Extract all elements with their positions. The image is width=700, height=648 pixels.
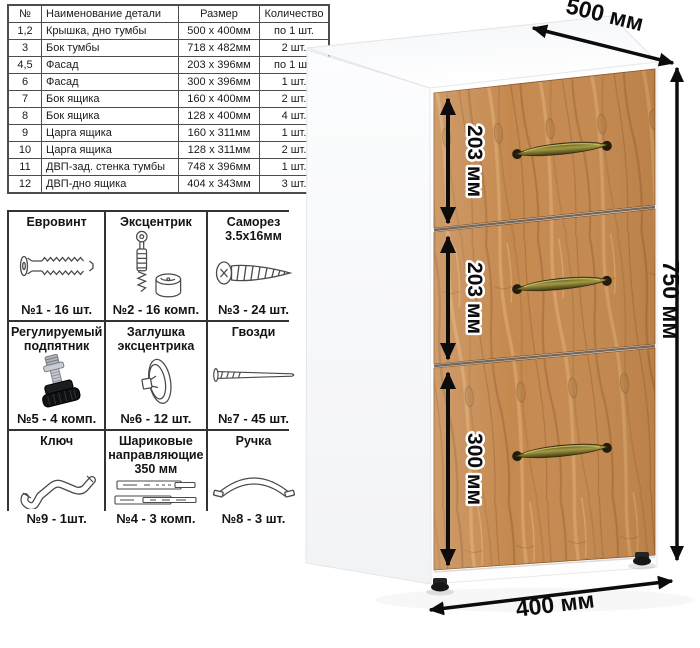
part-size: 128 х 311мм: [179, 142, 260, 159]
part-size: 500 х 400мм: [179, 23, 260, 40]
table-row: 7Бок ящика160 х 400мм2 шт.: [8, 91, 329, 108]
part-name: Царга ящика: [42, 125, 179, 142]
hw-qty: №5 - 4 комп.: [17, 411, 96, 426]
col-header-num: №: [8, 5, 42, 23]
adjustable-foot-icon: [21, 353, 93, 411]
hardware-grid: Евровинт №1 - 16 шт. Эксцентрик: [7, 210, 289, 511]
table-row: 8Бок ящика128 х 400мм4 шт.: [8, 108, 329, 125]
part-name: Царга ящика: [42, 142, 179, 159]
hw-title: Шариковые направляющие 350 мм: [108, 435, 203, 476]
hw-cell-excentric: Эксцентрик: [106, 212, 205, 320]
assembly-sheet: № Наименование детали Размер Количество …: [0, 0, 700, 648]
hw-title: Заглушка эксцентрика: [108, 326, 203, 354]
part-name: ДВП-зад. стенка тумбы: [42, 159, 179, 176]
hw-qty: №7 - 45 шт.: [218, 411, 289, 426]
part-num: 6: [8, 74, 42, 91]
part-size: 300 х 396мм: [179, 74, 260, 91]
hw-cell-gvozdi: Гвозди №7 - 45 шт.: [208, 322, 300, 430]
cam-lock-icon: [124, 230, 188, 302]
hw-cell-eurovint: Евровинт №1 - 16 шт.: [9, 212, 104, 320]
hw-title: Регулируемый подпятник: [11, 326, 102, 354]
hw-title: Эксцентрик: [120, 216, 192, 230]
table-row: 9Царга ящика160 х 311мм1 шт.: [8, 125, 329, 142]
hw-qty: №8 - 3 шт.: [222, 511, 286, 526]
hw-qty: №4 - 3 комп.: [116, 511, 195, 526]
part-num: 8: [8, 108, 42, 125]
table-row: 1,2Крышка, дно тумбы500 х 400ммпо 1 шт.: [8, 23, 329, 40]
part-name: Бок тумбы: [42, 40, 179, 57]
table-row: 4,5Фасад203 х 396ммпо 1 шт.: [8, 57, 329, 74]
hw-title: Ключ: [40, 435, 73, 449]
part-num: 9: [8, 125, 42, 142]
cabinet-left-side: [306, 50, 431, 584]
part-size: 404 х 343мм: [179, 176, 260, 194]
hex-key-icon: [17, 449, 97, 511]
table-row: 6Фасад300 х 396мм1 шт.: [8, 74, 329, 91]
hw-cell-podpyatnik: Регулируемый подпятник №5 - 4 комп.: [9, 322, 104, 430]
hw-qty: №1 - 16 шт.: [21, 302, 92, 317]
part-num: 1,2: [8, 23, 42, 40]
table-row: 12ДВП-дно ящика404 х 343мм3 шт.: [8, 176, 329, 194]
parts-table: № Наименование детали Размер Количество …: [7, 4, 330, 194]
part-name: Бок ящика: [42, 108, 179, 125]
part-size: 748 х 396мм: [179, 159, 260, 176]
drawer3-height-label: 300 мм: [463, 433, 486, 505]
ball-slides-icon: [114, 477, 198, 511]
hw-cell-ruchka: Ручка №8 - 3 шт.: [208, 431, 300, 528]
bow-handle-icon: [212, 449, 296, 511]
part-name: Бок ящика: [42, 91, 179, 108]
euro-screw-icon: [17, 230, 97, 302]
drawer2-height-label: 203 мм: [463, 262, 486, 334]
part-name: ДВП-дно ящика: [42, 176, 179, 194]
drawer1-height-label: 203 мм: [463, 125, 486, 197]
table-row: 10Царга ящика128 х 311мм2 шт.: [8, 142, 329, 159]
table-row: 11ДВП-зад. стенка тумбы748 х 396мм1 шт.: [8, 159, 329, 176]
hw-title: Ручка: [236, 435, 272, 449]
part-num: 11: [8, 159, 42, 176]
part-size: 203 х 396мм: [179, 57, 260, 74]
part-num: 10: [8, 142, 42, 159]
part-size: 160 х 311мм: [179, 125, 260, 142]
part-size: 128 х 400мм: [179, 108, 260, 125]
table-row: 3Бок тумбы718 х 482мм2 шт.: [8, 40, 329, 57]
col-header-name: Наименование детали: [42, 5, 179, 23]
cam-cover-icon: [130, 353, 182, 411]
part-name: Крышка, дно тумбы: [42, 23, 179, 40]
hw-cell-napravlyayushchie: Шариковые направляющие 350 мм №4 - 3 ком…: [106, 431, 205, 528]
hw-qty: №9 - 1шт.: [27, 511, 87, 526]
self-tapping-screw-icon: [214, 244, 294, 302]
hw-title: Евровинт: [26, 216, 86, 230]
part-num: 7: [8, 91, 42, 108]
hw-qty: №2 - 16 комп.: [113, 302, 200, 317]
hw-qty: №6 - 12 шт.: [120, 411, 191, 426]
table-header-row: № Наименование детали Размер Количество: [8, 5, 329, 23]
hw-title: Саморез 3.5х16мм: [210, 216, 298, 244]
part-num: 3: [8, 40, 42, 57]
part-size: 718 х 482мм: [179, 40, 260, 57]
part-num: 12: [8, 176, 42, 194]
nail-icon: [210, 340, 298, 412]
hw-cell-zaglushka: Заглушка эксцентрика №6 - 12 шт.: [106, 322, 205, 430]
hw-cell-klyuch: Ключ №9 - 1шт.: [9, 431, 104, 528]
part-name: Фасад: [42, 74, 179, 91]
cabinet-illustration: 500 мм 750 мм 400 мм 203 мм 203 мм 300 м…: [300, 0, 700, 648]
hw-title: Гвозди: [232, 326, 276, 340]
hw-cell-samorez: Саморез 3.5х16мм №3 - 24 шт.: [208, 212, 300, 320]
part-num: 4,5: [8, 57, 42, 74]
height-dimension-label: 750 мм: [658, 261, 684, 340]
part-name: Фасад: [42, 57, 179, 74]
col-header-size: Размер: [179, 5, 260, 23]
part-size: 160 х 400мм: [179, 91, 260, 108]
hw-qty: №3 - 24 шт.: [218, 302, 289, 317]
